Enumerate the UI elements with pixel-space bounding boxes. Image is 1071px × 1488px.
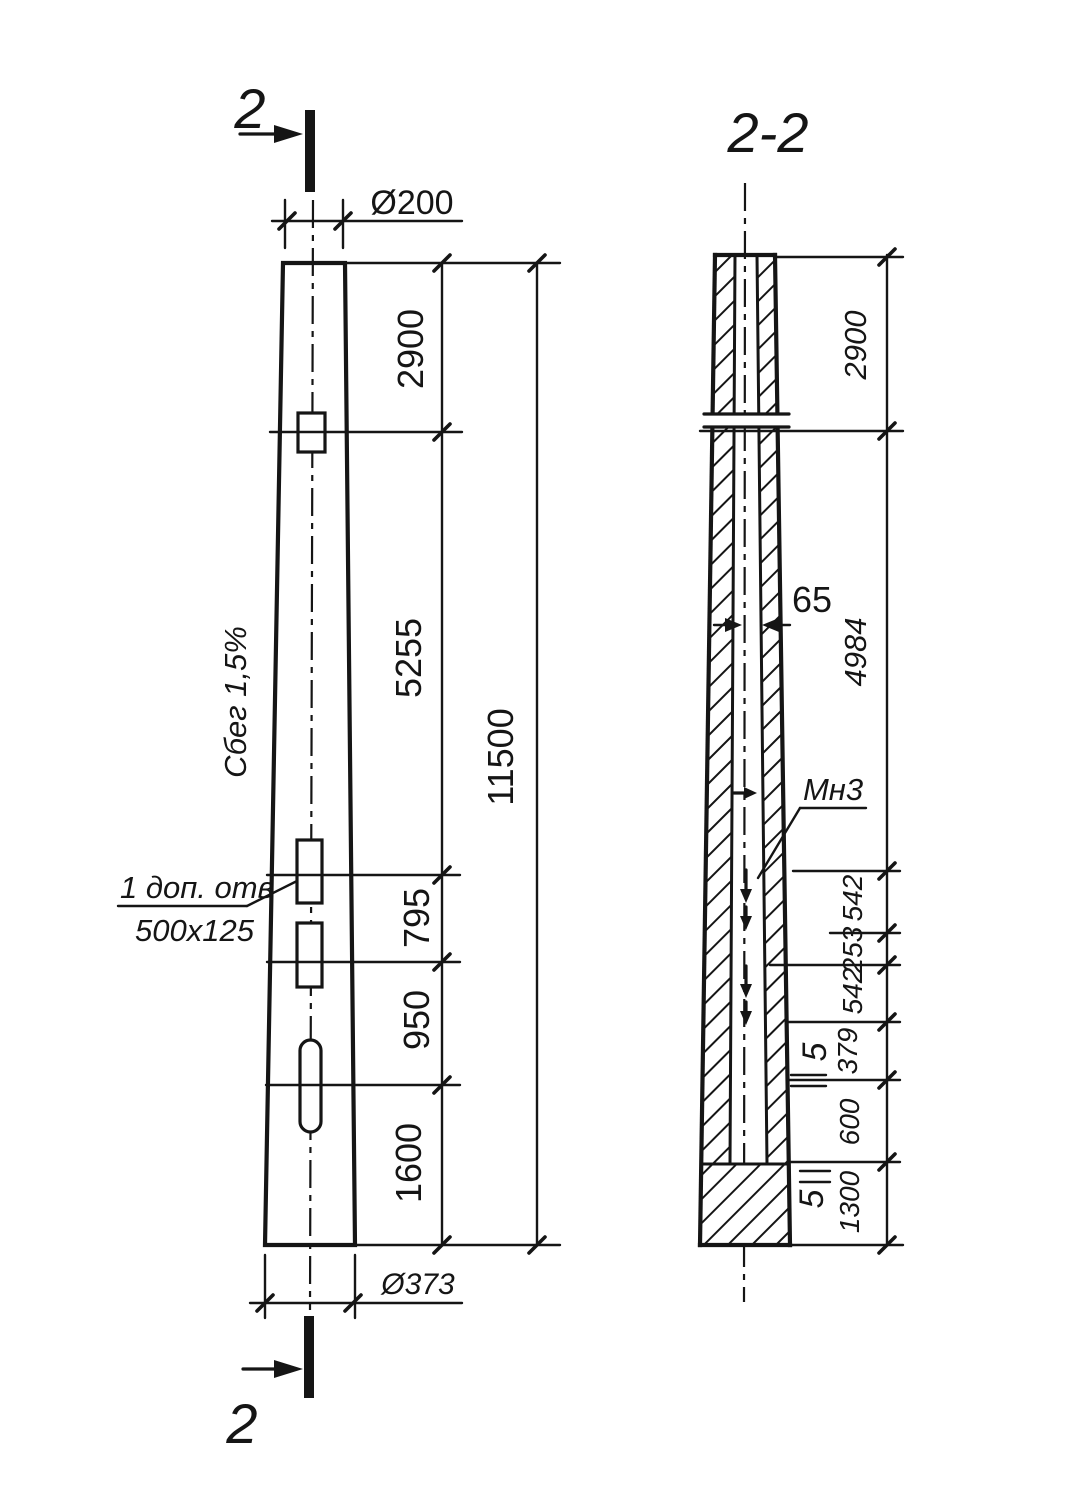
wall-joint [704,414,789,428]
drawing-sheet: 2 Ø200 [0,0,1071,1488]
dim-text: 795 [396,888,437,948]
arrow-head-icon [740,889,752,903]
arrow-head-icon [740,984,752,998]
dim-text: 542 [837,967,868,1014]
section-view: 2-2 [700,101,903,1302]
dim-text: 253 [837,926,868,974]
hole-slot-1 [297,840,322,903]
dim-text-bottom-diameter: Ø373 [380,1268,455,1301]
bottom-plug-hatched [700,1164,790,1245]
section-mark-top-label: 2 [233,77,265,140]
arrow-head-icon [744,787,757,799]
hole-note-line2: 500x125 [135,913,255,948]
dim-text: 2900 [390,309,431,389]
arrow-head-icon [740,1011,752,1025]
section-title: 2-2 [727,101,809,164]
dim-text: 2900 [838,311,873,381]
dim-top-diameter: Ø200 [272,184,462,248]
dim-text-overall: 11500 [480,708,521,805]
mark-mn3-label: Мн3 [803,772,863,807]
drawing-canvas: 2 Ø200 [0,0,1071,1488]
section-mark-bottom-label: 2 [225,1392,257,1455]
dim-text: 5255 [388,618,429,698]
dim-overall: 11500 [480,255,545,1253]
dim-text-top-diameter: Ø200 [370,184,453,222]
section-arrow-head-icon [274,125,303,143]
section-centerline [744,183,745,1302]
dim-gap-2: 5 [793,1171,831,1208]
dim-text: 600 [834,1098,865,1145]
dim-text-gap: 5 [796,1042,834,1061]
dim-text-core-width: 65 [792,579,832,620]
section-cut-mark-bottom: 2 [225,1316,309,1455]
dim-text-gap: 5 [793,1189,831,1208]
dim-chain-left: 2900 5255 795 950 1600 [388,255,450,1253]
dim-text: 4984 [838,618,873,687]
section-cut-mark-top: 2 [233,77,310,192]
dim-text: 1300 [834,1170,865,1233]
dim-text: 950 [396,990,437,1050]
hole-slot-2 [297,923,322,987]
wall-right-hatched [757,255,789,1164]
dim-text: 379 [832,1028,863,1075]
arrow-head-icon [740,916,752,930]
elevation-view: 2 Ø200 [118,77,560,1455]
section-arrow-head-icon [274,1360,303,1378]
dim-bottom-diameter: Ø373 [250,1255,462,1318]
taper-label: Сбег 1,5% [218,626,253,778]
dim-chain-section: 2900 4984 542 253 542 379 600 1300 [832,249,895,1253]
dim-text: 1600 [388,1123,429,1203]
dim-text: 542 [837,874,868,921]
hole-note-line1: 1 доп. отв [120,870,274,905]
